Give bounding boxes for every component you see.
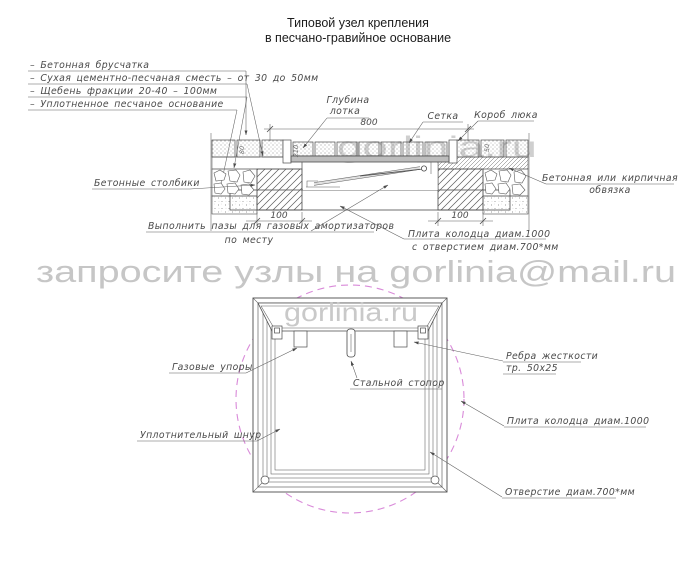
box-wall-right	[449, 140, 457, 163]
section-label-strapping-2: обвязка	[589, 185, 631, 196]
plan-label-ribs-1: Ребра жесткости	[506, 351, 598, 362]
concrete-post-right	[438, 169, 483, 210]
watermark-site: gorlinia.ru	[284, 297, 418, 327]
concrete-post-left	[257, 169, 302, 210]
section-label-grooves-2: по месту	[225, 235, 274, 246]
box-wall-left	[283, 140, 291, 163]
page-title-line2: в песчано-гравийное основание	[265, 31, 451, 45]
section-label-plate-1: Плита колодца диам.1000	[408, 229, 550, 240]
title-block: Типовой узел крепления в песчано-гравийн…	[265, 16, 451, 45]
hinge-circle-right	[431, 476, 439, 484]
dim-paving-height: 80	[238, 146, 246, 154]
dim-100-left-text: 100	[270, 211, 287, 221]
page-title-line1: Типовой узел крепления	[287, 16, 429, 30]
section-label-grooves-1: Выполнить пазы для газовых амортизаторов	[148, 221, 394, 232]
rib-tab-left	[294, 331, 307, 347]
section-view: 800 100 100 80 210 50 Глубина лотка Сетк	[92, 95, 678, 253]
dim-100-right-text: 100	[451, 211, 468, 221]
drawing-canvas: gorlinia.ru Типовой узел крепления в пес…	[0, 0, 700, 561]
plan-label-gas-struts: Газовые упоры	[172, 362, 253, 373]
section-label-hatch-box: Короб люка	[474, 110, 538, 121]
dim-tray-depth: 210	[292, 145, 300, 157]
dim-layer-height: 50	[483, 144, 491, 152]
legend-item-cement-sand-mix: – Сухая цементно-песчаная сместь – от 30…	[30, 73, 319, 84]
legend-leader-stone	[234, 97, 247, 168]
dim-800-text: 800	[360, 118, 377, 128]
legend-item-crushed-stone: – Щебень фракции 20-40 – 100мм	[30, 86, 217, 97]
section-label-tray-depth-2: лотка	[329, 106, 360, 117]
plan-label-ribs-2: тр. 50х25	[506, 363, 558, 374]
legend-item-paving: – Бетонная брусчатка	[30, 60, 149, 71]
dim-post-right: 100	[428, 211, 493, 226]
section-label-plate-2: с отверстием диам.700*мм	[412, 242, 559, 253]
plan-label-hole: Отверстие диам.700*мм	[505, 487, 635, 498]
lid-pan	[291, 156, 449, 162]
plan-label-plate: Плита колодца диам.1000	[507, 416, 649, 427]
watermark-request: запросите узлы на gorlinia@mail.ru	[36, 254, 676, 289]
section-label-strapping-1: Бетонная или кирпичная	[542, 173, 678, 184]
legend-item-compacted-sand: – Уплотненное песчаное основание	[30, 99, 224, 110]
section-label-posts: Бетонные столбики	[94, 178, 200, 189]
technical-drawing: gorlinia.ru Типовой узел крепления в пес…	[0, 0, 700, 561]
sand-base-left	[212, 196, 257, 214]
sand-base-right	[483, 196, 528, 214]
plan-label-sealing-cord: Уплотнительный шнур	[140, 430, 261, 441]
plan-label-steel-stopper: Стальной стопор	[353, 378, 445, 389]
rib-tab-right	[394, 331, 407, 347]
section-label-mesh: Сетка	[428, 111, 459, 122]
section-label-tray-depth-1: Глубина	[327, 95, 370, 106]
hinge-circle-left	[261, 476, 269, 484]
